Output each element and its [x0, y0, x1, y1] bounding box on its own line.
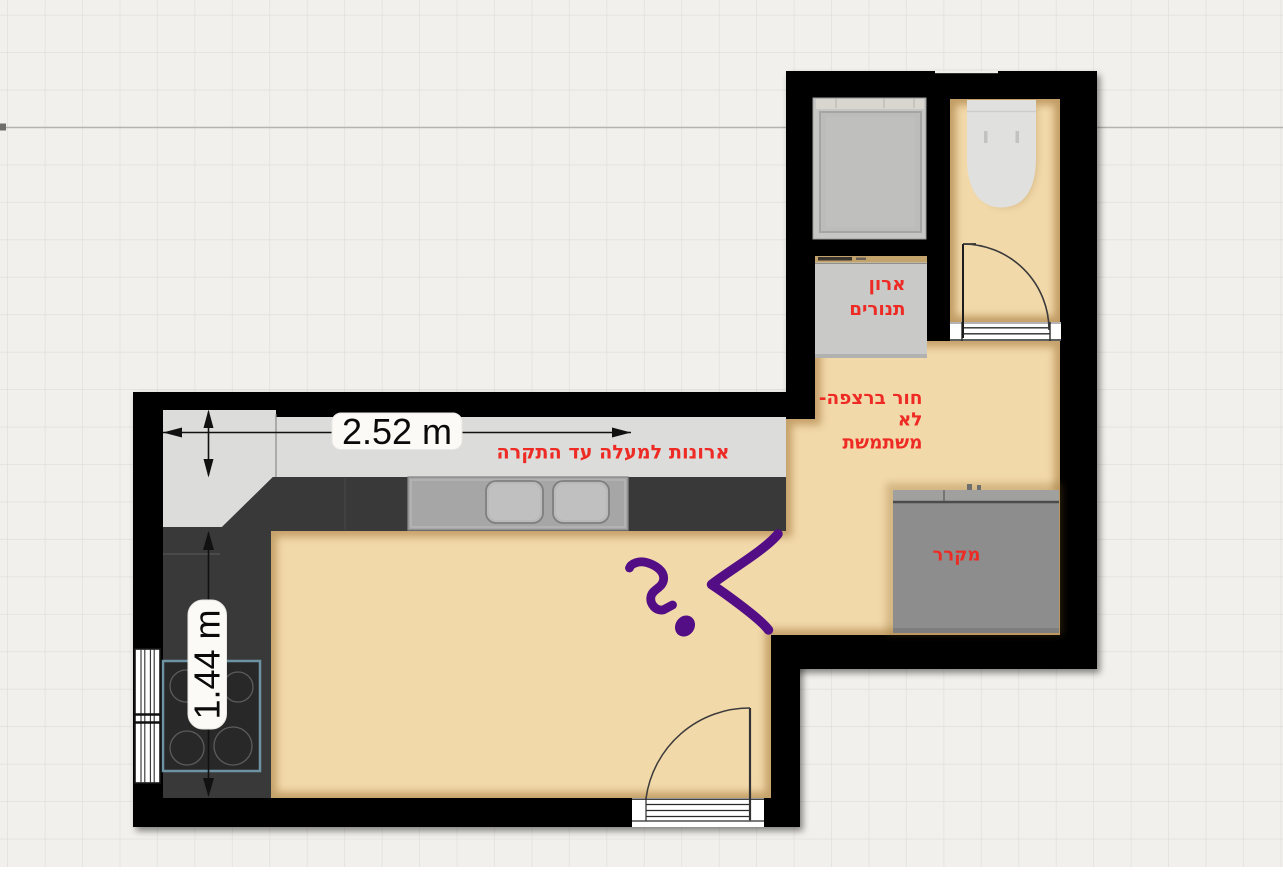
svg-text:2.52 m: 2.52 m: [342, 411, 452, 452]
svg-text:1.44 m: 1.44 m: [187, 609, 228, 719]
